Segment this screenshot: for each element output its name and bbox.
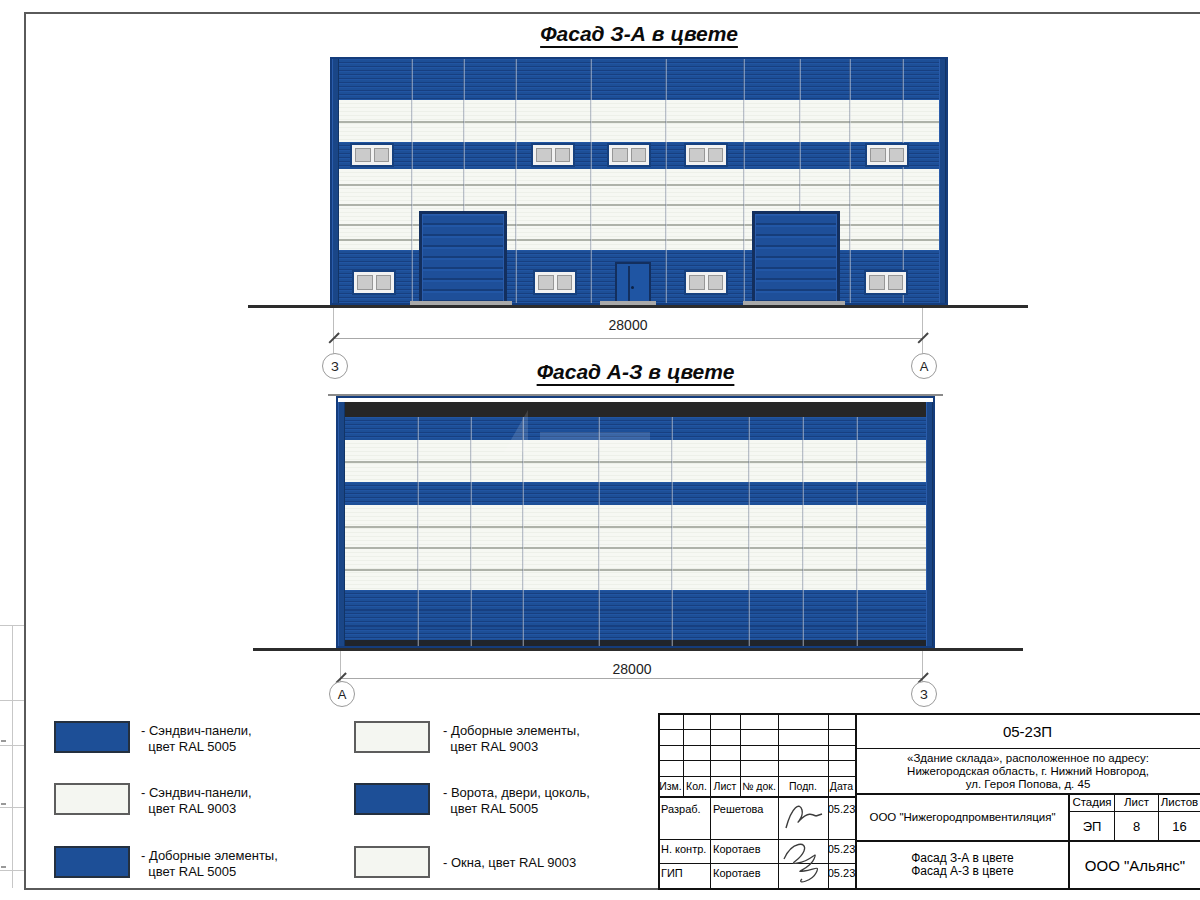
tb-name-razrab: Решетова (713, 801, 777, 817)
axis-marker-right: З (911, 681, 937, 707)
corner-pilaster (926, 402, 933, 646)
window-pane (538, 275, 554, 290)
panel-joint (332, 121, 946, 123)
window-pane (612, 148, 628, 162)
drawing-sheet: Фасад З-А в цвете 28000 З А (0, 0, 1200, 900)
window (684, 270, 728, 295)
window-pane (689, 148, 705, 162)
tb-object-address: «Здание склада», расположенное по адресу… (858, 749, 1198, 793)
panel-vertical-joint (665, 59, 667, 303)
panel-joint (338, 526, 933, 528)
window-pane (355, 148, 371, 162)
corner-pilaster (338, 402, 345, 646)
sectional-gate-left (419, 211, 507, 305)
tb-name-gip: Коротаев (713, 865, 777, 881)
window (865, 143, 909, 167)
ground-line (253, 648, 1023, 651)
window-pane (869, 275, 885, 290)
legend-swatch-ral5005 (354, 783, 430, 815)
tb-role-razrab: Разраб. (661, 801, 710, 817)
margin-stamp-mark (1, 866, 6, 868)
tb-date-razrab: 05.23 (828, 801, 855, 817)
dimension-line (334, 338, 923, 339)
tb-date-nkontr: 05.23 (828, 841, 855, 857)
legend-label: - Сэндвич-панели, цвет RAL 5005 (141, 723, 252, 754)
dimension-line (341, 678, 923, 679)
panel-vertical-joint (590, 59, 592, 303)
window-pane (631, 148, 647, 162)
facade1-elevation (330, 57, 948, 305)
entrance-door (615, 262, 651, 305)
frame-top-line (24, 12, 1200, 14)
panel-joint (338, 461, 933, 463)
window (607, 143, 651, 167)
legend-label: - Доборные элементы, цвет RAL 9003 (443, 723, 580, 754)
facade2-band-blue-bottom (338, 590, 933, 640)
legend-label: - Ворота, двери, цоколь, цвет RAL 5005 (443, 785, 590, 816)
window (352, 270, 396, 295)
corner-pilaster (939, 59, 946, 303)
extension-line (922, 308, 923, 358)
tb-sheet-value: 8 (1115, 812, 1158, 840)
tb-organization: ООО "Нижегородпромвентиляция" (857, 795, 1068, 840)
window-pane (689, 275, 705, 290)
signature-icon (782, 798, 826, 838)
corner-pilaster (332, 59, 339, 303)
window-pane (889, 148, 905, 162)
panel-vertical-joint (849, 59, 851, 303)
margin-stamp-mark (1, 740, 6, 742)
facade1-title: Фасад З-А в цвете (330, 22, 948, 46)
panel-joint (338, 625, 933, 627)
tb-sheet-content: Фасад З-А в цветеФасад А-З в цвете (857, 842, 1068, 888)
panel-vertical-joint (748, 417, 750, 646)
panel-joint (338, 609, 933, 611)
tb-role-nkontr: Н. контр. (661, 841, 710, 857)
door-leaf-split (628, 266, 630, 303)
window-pane (555, 148, 571, 162)
facade2-plinth (338, 640, 933, 648)
panel-vertical-joint (802, 417, 804, 646)
window-pane (708, 148, 724, 162)
panel-vertical-joint (902, 59, 904, 303)
signature-icon (778, 839, 828, 887)
panel-vertical-joint (411, 59, 413, 303)
window (350, 143, 394, 167)
window (531, 143, 575, 167)
window (684, 143, 728, 167)
window-pane (376, 275, 392, 290)
legend-swatch-ral5005 (54, 721, 130, 753)
margin-stamp-mark (1, 803, 6, 805)
tb-stage-label: Стадия (1070, 794, 1114, 811)
window-pane (357, 275, 373, 290)
tb-col-podp: Подп. (778, 776, 828, 796)
tb-sheet-label: Лист (1115, 794, 1158, 811)
margin-stamp-line (12, 625, 13, 888)
facade2-elevation (336, 396, 935, 648)
ground-line (248, 305, 1028, 308)
window-pane (374, 148, 390, 162)
tb-sheets-value: 16 (1159, 812, 1200, 840)
tb-date-gip: 05.23 (828, 865, 855, 881)
title-block-line (658, 760, 855, 761)
window-pane (870, 148, 886, 162)
tb-col-list: Лист (710, 776, 740, 796)
extension-line (333, 308, 334, 358)
sectional-gate-right (752, 211, 840, 305)
panel-vertical-joint (671, 417, 673, 646)
panel-joint (338, 569, 933, 571)
panel-joint (338, 547, 933, 549)
panel-joint (332, 184, 946, 186)
window (533, 270, 577, 295)
facade1-dimension: 28000 (528, 317, 728, 333)
title-block-line (658, 729, 855, 730)
tb-name-nkontr: Коротаев (713, 841, 777, 857)
panel-vertical-joint (856, 417, 858, 646)
panel-vertical-joint (417, 417, 419, 646)
panel-vertical-joint (515, 59, 517, 303)
facade2-band-blue-mid (338, 482, 933, 505)
title-block: Изм. Кол. Лист № док. Подп. Дата Разраб.… (658, 713, 1200, 890)
window-pane (708, 275, 724, 290)
legend-swatch-ral5005 (54, 846, 130, 878)
facade2-dimension: 28000 (532, 661, 732, 677)
tb-col-doc: № док. (740, 776, 778, 796)
tb-role-gip: ГИП (661, 865, 710, 881)
title-block-line (658, 888, 1200, 890)
window (864, 270, 908, 295)
legend-swatch-ral9003 (354, 846, 430, 878)
tb-doc-number: 05-23П (855, 715, 1200, 748)
tb-col-izm: Изм. (658, 776, 683, 796)
door-handle (631, 286, 634, 289)
tb-col-data: Дата (828, 776, 855, 796)
watermark-logo (498, 406, 658, 456)
frame-left-line (24, 12, 26, 890)
legend-label: - Окна, цвет RAL 9003 (443, 855, 576, 871)
legend-swatch-ral9003 (354, 721, 430, 753)
facade2-title: Фасад А-З в цвете (336, 360, 935, 384)
title-block-line (658, 745, 855, 746)
panel-joint (332, 204, 946, 206)
window-pane (888, 275, 904, 290)
tb-company: ООО "Альянс" (1070, 842, 1200, 888)
tb-stage-value: ЭП (1070, 812, 1114, 840)
tb-sheets-label: Листов (1159, 794, 1200, 811)
axis-marker-left: А (329, 681, 355, 707)
window-pane (557, 275, 573, 290)
panel-vertical-joint (470, 417, 472, 646)
window-pane (536, 148, 552, 162)
panel-vertical-joint (743, 59, 745, 303)
legend-label: - Доборные элементы, цвет RAL 5005 (141, 848, 278, 879)
legend-label: - Сэндвич-панели, цвет RAL 9003 (141, 785, 252, 816)
legend-swatch-ral9003 (54, 783, 130, 815)
tb-col-kol: Кол. (683, 776, 710, 796)
facade1-band-blue-top (332, 59, 946, 100)
